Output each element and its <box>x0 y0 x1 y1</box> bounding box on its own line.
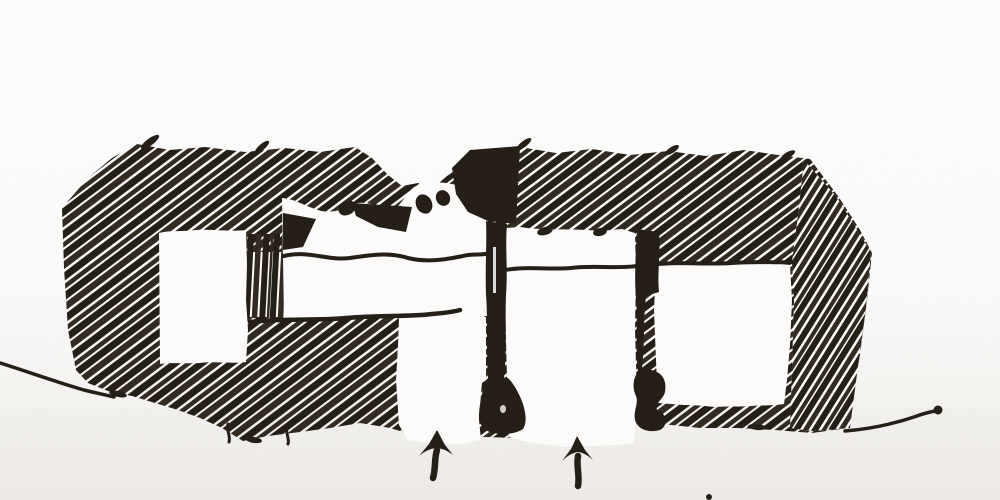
sketch-photo <box>0 0 1000 500</box>
central-wall-bar <box>486 221 507 378</box>
ground-line-end-dot <box>934 406 943 415</box>
arrow-shaft <box>577 456 578 486</box>
left-entry-gap-void <box>396 313 486 444</box>
arrow-shaft <box>433 450 437 478</box>
right-room-void <box>654 262 792 407</box>
left-room-void <box>159 230 248 364</box>
sketch-canvas <box>0 0 1000 500</box>
funnel-speck <box>500 405 506 413</box>
bottom-edge-dot <box>706 494 712 500</box>
central-wall-slit <box>493 247 496 293</box>
